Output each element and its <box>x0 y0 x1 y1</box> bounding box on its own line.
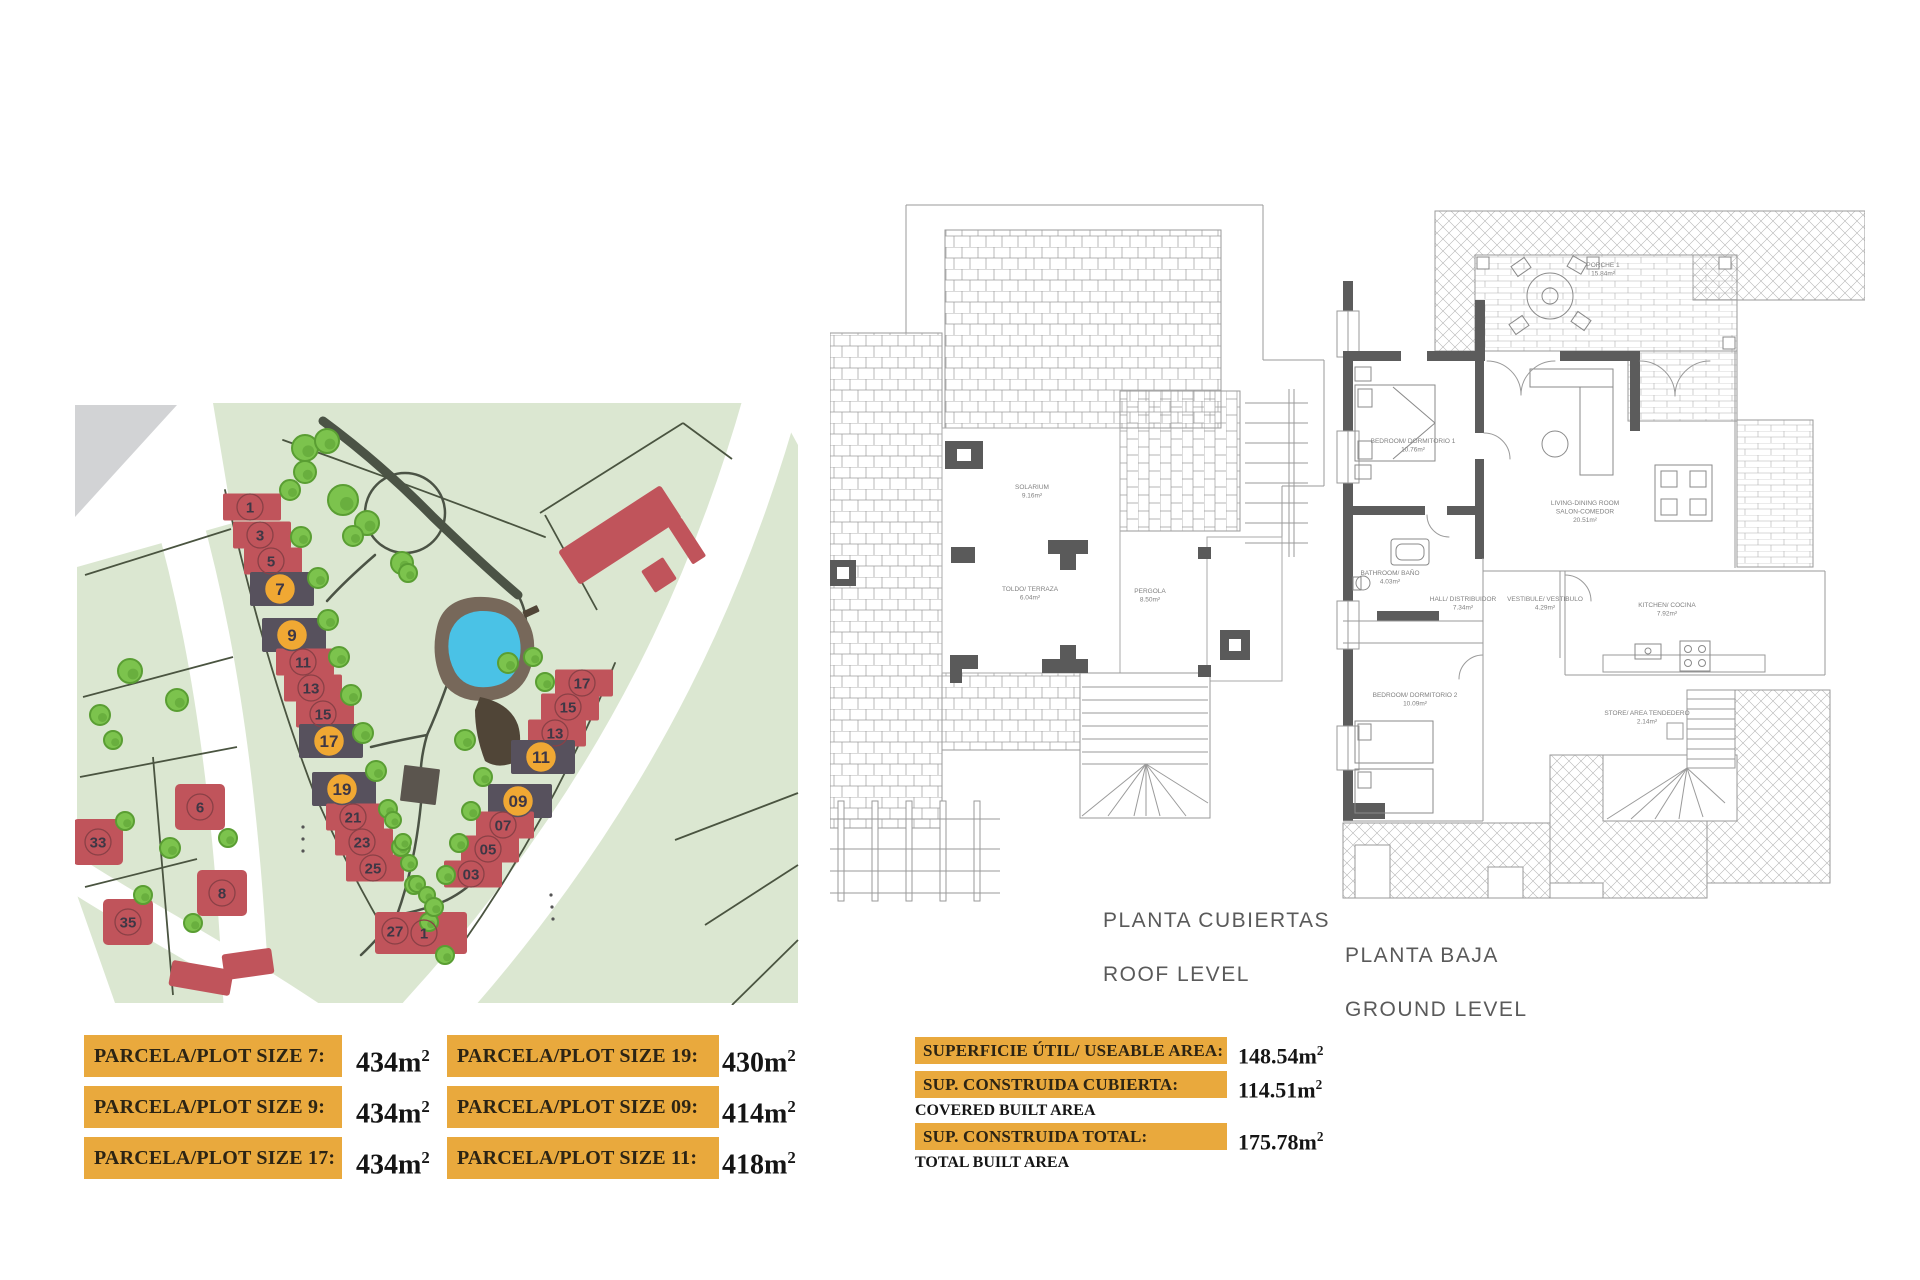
room-label: BATHROOM/ BAÑO <box>1360 568 1419 577</box>
area-bar: SUP. CONSTRUIDA TOTAL: <box>915 1123 1227 1150</box>
plot-number: 8 <box>218 885 226 902</box>
tree-icon <box>395 834 411 850</box>
plot-number: 05 <box>480 841 497 858</box>
tree-icon <box>294 461 316 483</box>
plot-number: 09 <box>509 792 528 811</box>
plot-marker: 35 <box>115 909 141 935</box>
area-sublabel: TOTAL BUILT AREA <box>915 1154 1069 1172</box>
plot-number: 33 <box>90 834 107 851</box>
plot-number: 1 <box>420 925 428 942</box>
plot-number: 1 <box>246 499 254 516</box>
plot-size-bar: PARCELA/PLOT SIZE 17: <box>84 1137 342 1179</box>
plot-marker: 25 <box>360 855 386 881</box>
room-label: HALL/ DISTRIBUIDOR <box>1430 596 1497 603</box>
room-label: 4.03m² <box>1380 579 1401 586</box>
room-label: 7.34m² <box>1453 605 1474 612</box>
plot-marker: 19 <box>327 774 358 805</box>
plot-size-value: 434m2 <box>356 1035 430 1077</box>
plot-marker: 6 <box>187 794 213 820</box>
plot-marker: 09 <box>503 786 534 817</box>
plot-size-label: PARCELA/PLOT SIZE 7: <box>94 1045 325 1068</box>
ground-plan-title: PLANTA BAJA GROUND LEVEL <box>1345 915 1528 1023</box>
plot-number: 11 <box>295 654 311 671</box>
tree-icon <box>280 480 300 500</box>
tree-icon <box>118 659 142 683</box>
plot-marker: 07 <box>490 812 516 838</box>
roof-level-floor-plan: SOLARIUM9.16m²TOLDO/ TERRAZA6.04m²PERGOL… <box>830 203 1335 903</box>
plot-number: 25 <box>365 860 382 877</box>
area-bar: SUP. CONSTRUIDA CUBIERTA: <box>915 1071 1227 1098</box>
roof-plan-title: PLANTA CUBIERTAS ROOF LEVEL <box>1103 880 1330 988</box>
tree-icon <box>315 429 339 453</box>
plot-number: 27 <box>387 923 404 940</box>
tree-icon <box>474 768 492 786</box>
tree-icon <box>450 834 468 852</box>
tree-icon <box>341 685 361 705</box>
plot-marker: 5 <box>258 548 284 574</box>
tree-icon <box>329 647 349 667</box>
room-label: PERGOLA <box>1134 588 1166 595</box>
area-value: 175.78m2 <box>1238 1123 1323 1150</box>
room-label: BEDROOM/ DORMITORIO 1 <box>1371 438 1456 445</box>
room-label: 15.84m² <box>1591 271 1616 278</box>
plot-marker: 15 <box>555 694 581 720</box>
tree-icon <box>104 731 122 749</box>
ground-plan-title-es: PLANTA BAJA <box>1345 944 1499 967</box>
plot-number: 7 <box>275 580 284 599</box>
tree-icon <box>455 730 475 750</box>
plot-number: 17 <box>320 732 339 751</box>
plot-marker: 23 <box>349 829 375 855</box>
plot-number: 23 <box>354 834 371 851</box>
plot-marker: 03 <box>458 861 484 887</box>
plot-size-bar: PARCELA/PLOT SIZE 9: <box>84 1086 342 1128</box>
tree-icon <box>436 946 454 964</box>
room-label: 20.51m² <box>1573 517 1598 524</box>
room-label: SALON-COMEDOR <box>1556 509 1614 516</box>
tree-icon <box>116 812 134 830</box>
plot-marker: 1 <box>237 494 263 520</box>
room-label: 9.16m² <box>1022 493 1043 500</box>
plot-marker: 1 <box>411 920 437 946</box>
plot-number: 17 <box>574 675 591 692</box>
plot-number: 5 <box>267 553 275 570</box>
plot-size-label: PARCELA/PLOT SIZE 09: <box>457 1096 698 1119</box>
room-label: 8.50m² <box>1140 597 1161 604</box>
area-label: SUP. CONSTRUIDA CUBIERTA: <box>923 1075 1178 1095</box>
plot-number: 11 <box>532 748 550 767</box>
room-label: BEDROOM/ DORMITORIO 2 <box>1373 692 1458 699</box>
tree-icon <box>524 648 542 666</box>
plot-number: 15 <box>315 706 332 723</box>
plot-size-bar: PARCELA/PLOT SIZE 19: <box>447 1035 719 1077</box>
tree-icon <box>401 855 417 871</box>
tree-icon <box>399 564 417 582</box>
room-label: STORE/ AREA TENDEDERO <box>1604 710 1689 717</box>
tree-icon <box>134 886 152 904</box>
plot-marker: 05 <box>475 836 501 862</box>
area-value: 148.54m2 <box>1238 1037 1323 1064</box>
plot-size-value: 418m2 <box>722 1137 796 1179</box>
room-label: 6.04m² <box>1020 595 1041 602</box>
plot-marker: 3 <box>247 522 273 548</box>
plot-number: 9 <box>287 626 296 645</box>
plot-number: 3 <box>256 527 264 544</box>
plot-size-bar: PARCELA/PLOT SIZE 7: <box>84 1035 342 1077</box>
room-label: 7.92m² <box>1657 611 1678 618</box>
plot-size-label: PARCELA/PLOT SIZE 19: <box>457 1045 698 1068</box>
plot-marker: 27 <box>382 918 408 944</box>
tree-icon <box>328 485 358 515</box>
plot-number: 03 <box>463 866 480 883</box>
area-value: 114.51m2 <box>1238 1071 1322 1098</box>
room-label: KITCHEN/ COCINA <box>1638 602 1696 609</box>
plot-marker: 21 <box>340 804 366 830</box>
room-label: SOLARIUM <box>1015 484 1049 491</box>
ground-plan-title-en: GROUND LEVEL <box>1345 998 1528 1021</box>
plot-number: 35 <box>120 914 137 931</box>
tree-icon <box>160 838 180 858</box>
room-label: PORCHE 1 <box>1586 262 1620 269</box>
tree-icon <box>90 705 110 725</box>
tree-icon <box>498 653 518 673</box>
plot-number: 6 <box>196 799 204 816</box>
tree-icon <box>353 723 373 743</box>
plot-number: 15 <box>560 699 577 716</box>
room-label: 4.29m² <box>1535 605 1556 612</box>
tree-icon <box>366 761 386 781</box>
plot-number: 19 <box>333 780 352 799</box>
tree-icon <box>343 526 363 546</box>
plot-size-bar: PARCELA/PLOT SIZE 09: <box>447 1086 719 1128</box>
plot-marker: 17 <box>569 670 595 696</box>
tree-icon <box>291 527 311 547</box>
area-label: SUPERFICIE ÚTIL/ USEABLE AREA: <box>923 1041 1223 1061</box>
plot-size-label: PARCELA/PLOT SIZE 9: <box>94 1096 325 1119</box>
plot-size-label: PARCELA/PLOT SIZE 11: <box>457 1147 697 1170</box>
room-label: 10.76m² <box>1401 447 1426 454</box>
plot-size-value: 430m2 <box>722 1035 796 1077</box>
tree-icon <box>219 829 237 847</box>
tree-icon <box>425 898 443 916</box>
plot-marker: 13 <box>298 675 324 701</box>
plot-marker: 7 <box>265 574 296 605</box>
area-sublabel: COVERED BUILT AREA <box>915 1102 1096 1120</box>
brochure-page: { "page": {"background": "#ffffff"}, "si… <box>0 0 1920 1280</box>
ground-level-floor-plan: PORCHE 115.84m²BEDROOM/ DORMITORIO 110.7… <box>1335 203 1865 903</box>
room-label: 10.09m² <box>1403 701 1428 708</box>
tree-icon <box>385 812 401 828</box>
roof-plan-title-es: PLANTA CUBIERTAS <box>1103 909 1330 932</box>
plot-marker: 17 <box>314 726 345 757</box>
room-label: VESTIBULE/ VESTIBULO <box>1507 596 1583 603</box>
plot-number: 13 <box>303 680 320 697</box>
plot-number: 07 <box>495 817 512 834</box>
plot-number: 21 <box>345 809 362 826</box>
tree-icon <box>184 914 202 932</box>
plot-marker: 15 <box>310 701 336 727</box>
room-label: 2.14m² <box>1637 719 1658 726</box>
plot-size-value: 434m2 <box>356 1086 430 1128</box>
plot-size-value: 414m2 <box>722 1086 796 1128</box>
area-bar: SUPERFICIE ÚTIL/ USEABLE AREA: <box>915 1037 1227 1064</box>
tree-icon <box>292 435 318 461</box>
tree-icon <box>462 802 480 820</box>
area-label: SUP. CONSTRUIDA TOTAL: <box>923 1127 1147 1147</box>
plot-marker: 33 <box>85 829 111 855</box>
room-label: LIVING-DINING ROOM <box>1551 500 1619 507</box>
plot-size-label: PARCELA/PLOT SIZE 17: <box>94 1147 335 1170</box>
plot-marker: 8 <box>209 880 235 906</box>
tree-icon <box>536 673 554 691</box>
tree-icon <box>437 866 455 884</box>
plot-marker: 11 <box>290 649 316 675</box>
tree-icon <box>318 610 338 630</box>
plot-marker: 11 <box>526 742 557 773</box>
tree-icon <box>308 568 328 588</box>
room-label: TOLDO/ TERRAZA <box>1002 586 1059 593</box>
plot-size-value: 434m2 <box>356 1137 430 1179</box>
tree-icon <box>166 689 188 711</box>
plot-marker: 9 <box>277 620 308 651</box>
plot-size-bar: PARCELA/PLOT SIZE 11: <box>447 1137 719 1179</box>
plot-number: 13 <box>547 725 564 742</box>
roof-plan-title-en: ROOF LEVEL <box>1103 963 1250 986</box>
site-plan-map: 1357911131517192123251715131109070503271… <box>75 395 805 1005</box>
